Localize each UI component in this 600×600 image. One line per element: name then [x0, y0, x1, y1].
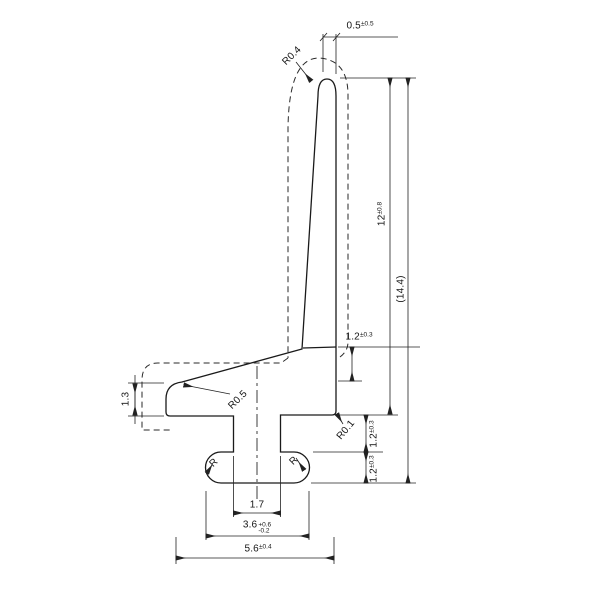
- dim-foot-height: 1.2±0.3: [369, 455, 380, 482]
- dim-foot-width: 3.6+0.6-0.2: [243, 520, 271, 535]
- dim-arm-end-thickness: 1.3: [121, 392, 132, 407]
- drawing-lines: [0, 0, 600, 600]
- dimension-lines: [135, 33, 408, 558]
- technical-drawing: 0.5±0.5 R0.4 12±0.8 (14.4) 1.2±0.3 R0.1 …: [0, 0, 600, 600]
- dim-arm-thickness: 1.2±0.3: [345, 332, 372, 343]
- dim-clearance-height: 1.2±0.3: [369, 420, 380, 447]
- dim-overall-width: 5.6±0.4: [244, 544, 271, 555]
- dim-overall-height: (14.4): [396, 275, 407, 302]
- dim-tip-width: 0.5±0.5: [346, 21, 373, 32]
- leader-lines: [184, 62, 343, 473]
- dim-neck-width: 1.7: [250, 500, 265, 511]
- profile-outline: [166, 79, 336, 483]
- junction-seam: [303, 347, 336, 348]
- dim-lip-height: 12±0.8: [377, 202, 388, 226]
- extension-lines: [128, 34, 420, 564]
